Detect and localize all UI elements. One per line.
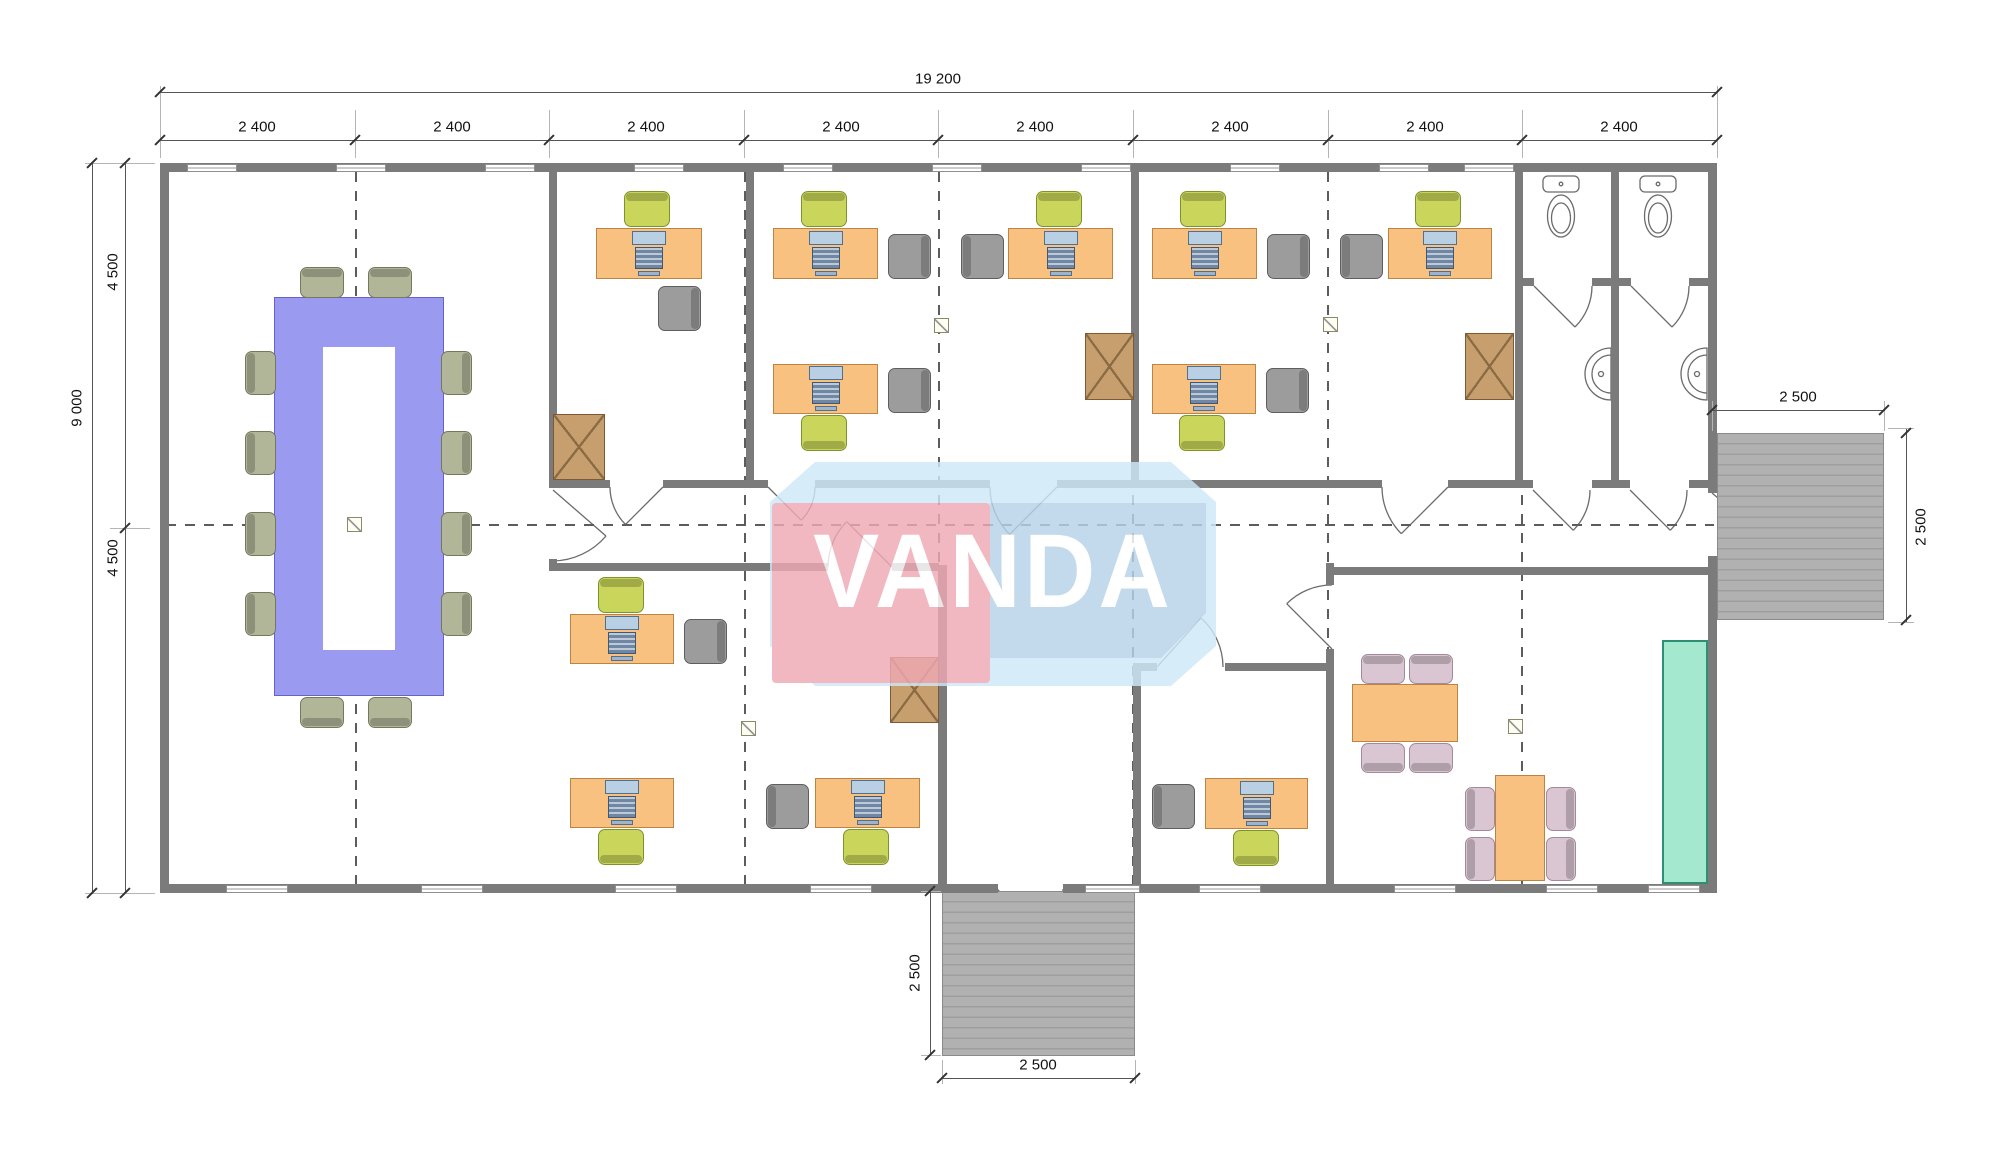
chair-back [370,269,410,277]
wall [553,480,610,488]
extension-line [85,163,155,164]
office-chair [598,829,644,865]
window [1379,164,1429,172]
window [1085,885,1140,893]
chair-back [1299,370,1307,411]
office-chair [624,191,670,227]
wall [1131,172,1139,488]
conference-chair [441,431,472,475]
center-marker [741,721,756,736]
chair-back [626,193,668,201]
computer-part [611,820,633,825]
office-chair [1415,191,1461,227]
chair-back [1300,236,1308,277]
wall [1515,172,1523,488]
computer-part [605,616,639,630]
chair-back [768,786,776,827]
computer-part [1187,366,1221,380]
computer-icon [809,366,843,412]
dimension-label: 2 400 [627,119,665,136]
watermark-text: VANDA [786,511,1200,632]
dimension-label: 2 400 [1600,119,1638,136]
dimension-line [160,92,1717,93]
window [336,164,386,172]
dining-chair [1361,654,1405,684]
dimension-label: 2 400 [433,119,471,136]
center-marker [347,517,362,532]
office-chair [801,191,847,227]
extension-line [1328,110,1329,158]
computer-icon [1240,781,1274,827]
wall [1326,649,1334,884]
computer-icon [605,616,639,662]
extension-line [938,110,939,158]
chair-back [845,855,887,863]
wall [1334,567,1710,575]
chair-back [462,514,470,554]
chair-back [247,433,255,473]
window [1230,164,1280,172]
computer-part [638,271,660,276]
window [1394,885,1456,893]
chair-back [302,718,342,726]
dimension-label: 4 500 [105,539,122,577]
door-arc-icon [1534,286,1592,327]
chair-back [1154,786,1162,827]
wall [1326,563,1334,585]
chair-back [1467,839,1475,879]
dining-table [1495,775,1545,881]
computer-part [1050,271,1072,276]
task-chair [658,286,701,331]
chair-back [803,193,845,201]
task-chair [1267,234,1310,279]
chair-back [1181,441,1223,449]
chair-back [302,269,342,277]
dimension-label: 2 400 [1016,119,1054,136]
door-arc-icon [1287,585,1332,649]
conference-chair [245,592,276,636]
window [932,164,982,172]
window [421,885,483,893]
chair-back [1363,656,1403,664]
computer-part [1044,231,1078,245]
task-chair [684,619,727,664]
conference-chair [300,267,344,298]
task-chair [888,368,931,413]
cabinet [553,414,605,480]
extension-line [1884,401,1885,431]
window [187,164,237,172]
window [615,885,677,893]
computer-part [1194,271,1216,276]
conference-chair [441,351,472,395]
dimension-label: 9 000 [69,389,86,427]
computer-part [635,247,663,269]
computer-icon [1188,231,1222,277]
window [783,164,833,172]
computer-part [812,247,840,269]
deck [942,891,1135,1056]
office-chair [1233,830,1279,866]
computer-icon [851,780,885,826]
chair-back [1363,763,1403,771]
cabinet [1085,333,1134,400]
extension-line [1133,110,1134,158]
conference-chair [245,512,276,556]
wall [1689,278,1710,286]
chair-back [963,236,971,277]
dimension-line [1712,410,1884,411]
fixture-icon [1640,176,1676,192]
office-chair [801,415,847,451]
computer-part [857,820,879,825]
chair-back [921,370,929,411]
window [810,885,872,893]
computer-part [809,231,843,245]
chair-back [1342,236,1350,277]
computer-part [1188,231,1222,245]
conference-chair [368,697,412,728]
computer-part [854,796,882,818]
computer-part [1047,247,1075,269]
dimension-line [942,1078,1135,1079]
chair-back [691,288,699,329]
chair-back [1566,839,1574,879]
fixture-icon [1543,176,1579,192]
computer-icon [632,231,666,277]
computer-part [611,656,633,661]
wall [746,172,754,488]
extension-line [160,86,161,158]
conference-table [275,298,443,695]
task-chair [961,234,1004,279]
computer-icon [1044,231,1078,277]
extension-line [744,110,745,158]
dimension-line [930,891,931,1055]
door-arc-icon [610,487,663,525]
dimension-label: 2 500 [1913,508,1930,546]
window [1464,164,1514,172]
dining-chair [1361,743,1405,773]
dimension-label: 2 400 [822,119,860,136]
conference-chair [441,592,472,636]
task-chair [1266,368,1309,413]
conference-chair [441,512,472,556]
floor-plan-canvas: 19 2002 4002 4002 4002 4002 4002 4002 40… [0,0,2000,1160]
computer-icon [1423,231,1457,277]
computer-part [605,780,639,794]
task-chair [888,234,931,279]
door-arc-icon [1631,286,1689,327]
window [1546,885,1598,893]
chair-back [1235,856,1277,864]
conference-chair [245,431,276,475]
window [1199,885,1261,893]
computer-part [632,231,666,245]
chair-back [1182,193,1224,201]
chair-back [1411,656,1451,664]
chair-back [1038,193,1080,201]
extension-line [110,528,150,529]
dimension-label: 2 400 [1211,119,1249,136]
dimension-line [1906,428,1907,622]
wall [1592,480,1630,488]
chair-back [921,236,929,277]
chair-back [247,594,255,634]
computer-icon [809,231,843,277]
conference-chair [245,351,276,395]
dining-table [1352,684,1458,742]
computer-part [1240,781,1274,795]
computer-part [815,406,837,411]
chair-back [1566,789,1574,829]
dining-chair [1546,837,1576,881]
window [226,885,288,893]
center-marker [1323,317,1338,332]
chair-back [462,353,470,393]
dining-chair [1409,654,1453,684]
office-chair [598,577,644,613]
chair-back [1411,763,1451,771]
wall [1523,278,1534,286]
computer-part [851,780,885,794]
wall [1448,480,1533,488]
extension-line [85,893,155,894]
computer-part [1243,797,1271,819]
chair-back [247,514,255,554]
computer-part [1191,247,1219,269]
dimension-label: 19 200 [915,71,961,88]
extension-line [942,1060,943,1084]
chair-back [1417,193,1459,201]
wall [1592,278,1611,286]
center-marker [1508,719,1523,734]
conference-chair [300,697,344,728]
center-marker [934,318,949,333]
computer-part [1193,406,1215,411]
task-chair [766,784,809,829]
door-arc-icon [1382,487,1448,534]
chair-back [717,621,725,662]
wall [1611,172,1619,488]
task-chair [1152,784,1195,829]
wall [1708,556,1717,884]
extension-line [1712,401,1713,431]
dimension-label: 2 500 [907,954,924,992]
computer-part [1423,231,1457,245]
office-chair [1180,191,1226,227]
office-chair [1036,191,1082,227]
chair-back [600,579,642,587]
window [634,164,684,172]
window [1648,885,1700,893]
chair-back [247,353,255,393]
dimension-line [92,163,93,893]
window [485,164,535,172]
chair-back [370,718,410,726]
dimension-label: 2 400 [238,119,276,136]
dimension-label: 2 500 [1019,1057,1057,1074]
wall [1133,663,1141,884]
task-chair [1340,234,1383,279]
wall [1619,278,1631,286]
computer-part [1246,821,1268,826]
computer-part [1429,271,1451,276]
chair-back [1467,789,1475,829]
wall [663,480,768,488]
cabinet [1465,333,1514,400]
computer-icon [1187,366,1221,412]
kitchen-counter [1662,640,1708,884]
computer-part [812,382,840,404]
wall [1225,663,1326,671]
computer-part [608,632,636,654]
wall [160,172,169,884]
computer-part [1190,382,1218,404]
chair-back [462,594,470,634]
wall [1689,480,1710,488]
wall [1708,172,1717,493]
vanda-watermark: VANDA [770,462,1216,688]
wall [1063,884,1717,893]
extension-line [549,110,550,158]
chair-back [600,855,642,863]
chair-back [462,433,470,473]
dimension-label: 2 400 [1406,119,1444,136]
conference-chair [368,267,412,298]
extension-line [355,110,356,158]
dining-chair [1409,743,1453,773]
office-chair [1179,415,1225,451]
dimension-label: 4 500 [105,253,122,291]
extension-line [1717,86,1718,158]
computer-part [815,271,837,276]
extension-line [1522,110,1523,158]
computer-part [809,366,843,380]
chair-back [803,441,845,449]
deck [1717,433,1884,620]
dining-chair [1465,787,1495,831]
office-chair [843,829,889,865]
dimension-label: 2 500 [1779,389,1817,406]
computer-icon [605,780,639,826]
computer-part [608,796,636,818]
computer-part [1426,247,1454,269]
dining-chair [1465,837,1495,881]
window [1081,164,1131,172]
extension-line [1135,1060,1136,1084]
dining-chair [1546,787,1576,831]
